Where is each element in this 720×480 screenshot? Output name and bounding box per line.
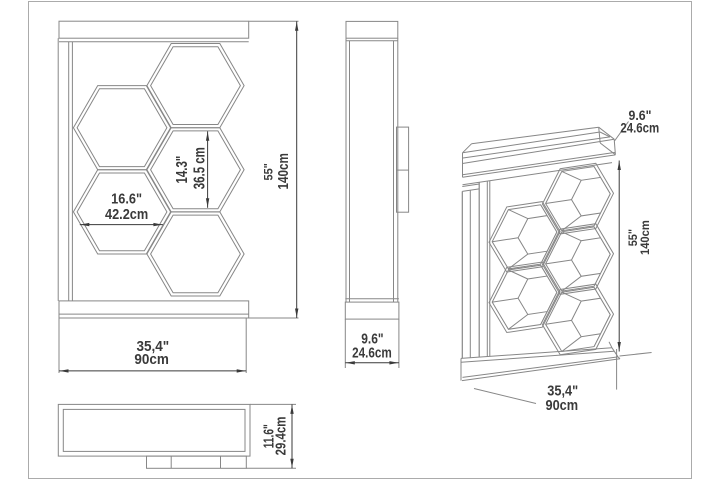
svg-text:14.3": 14.3" [173, 156, 190, 184]
svg-text:42.2cm: 42.2cm [105, 205, 148, 222]
svg-text:36.5 cm: 36.5 cm [191, 147, 208, 189]
svg-text:90cm: 90cm [546, 396, 579, 413]
svg-text:24.6cm: 24.6cm [352, 344, 392, 361]
svg-text:90cm: 90cm [134, 352, 168, 369]
svg-text:55": 55" [628, 229, 640, 246]
svg-text:140cm: 140cm [640, 220, 652, 255]
svg-text:55": 55" [263, 163, 275, 180]
svg-text:140cm: 140cm [275, 153, 292, 189]
svg-text:24.6cm: 24.6cm [620, 121, 659, 136]
svg-text:29.4cm: 29.4cm [272, 417, 289, 456]
